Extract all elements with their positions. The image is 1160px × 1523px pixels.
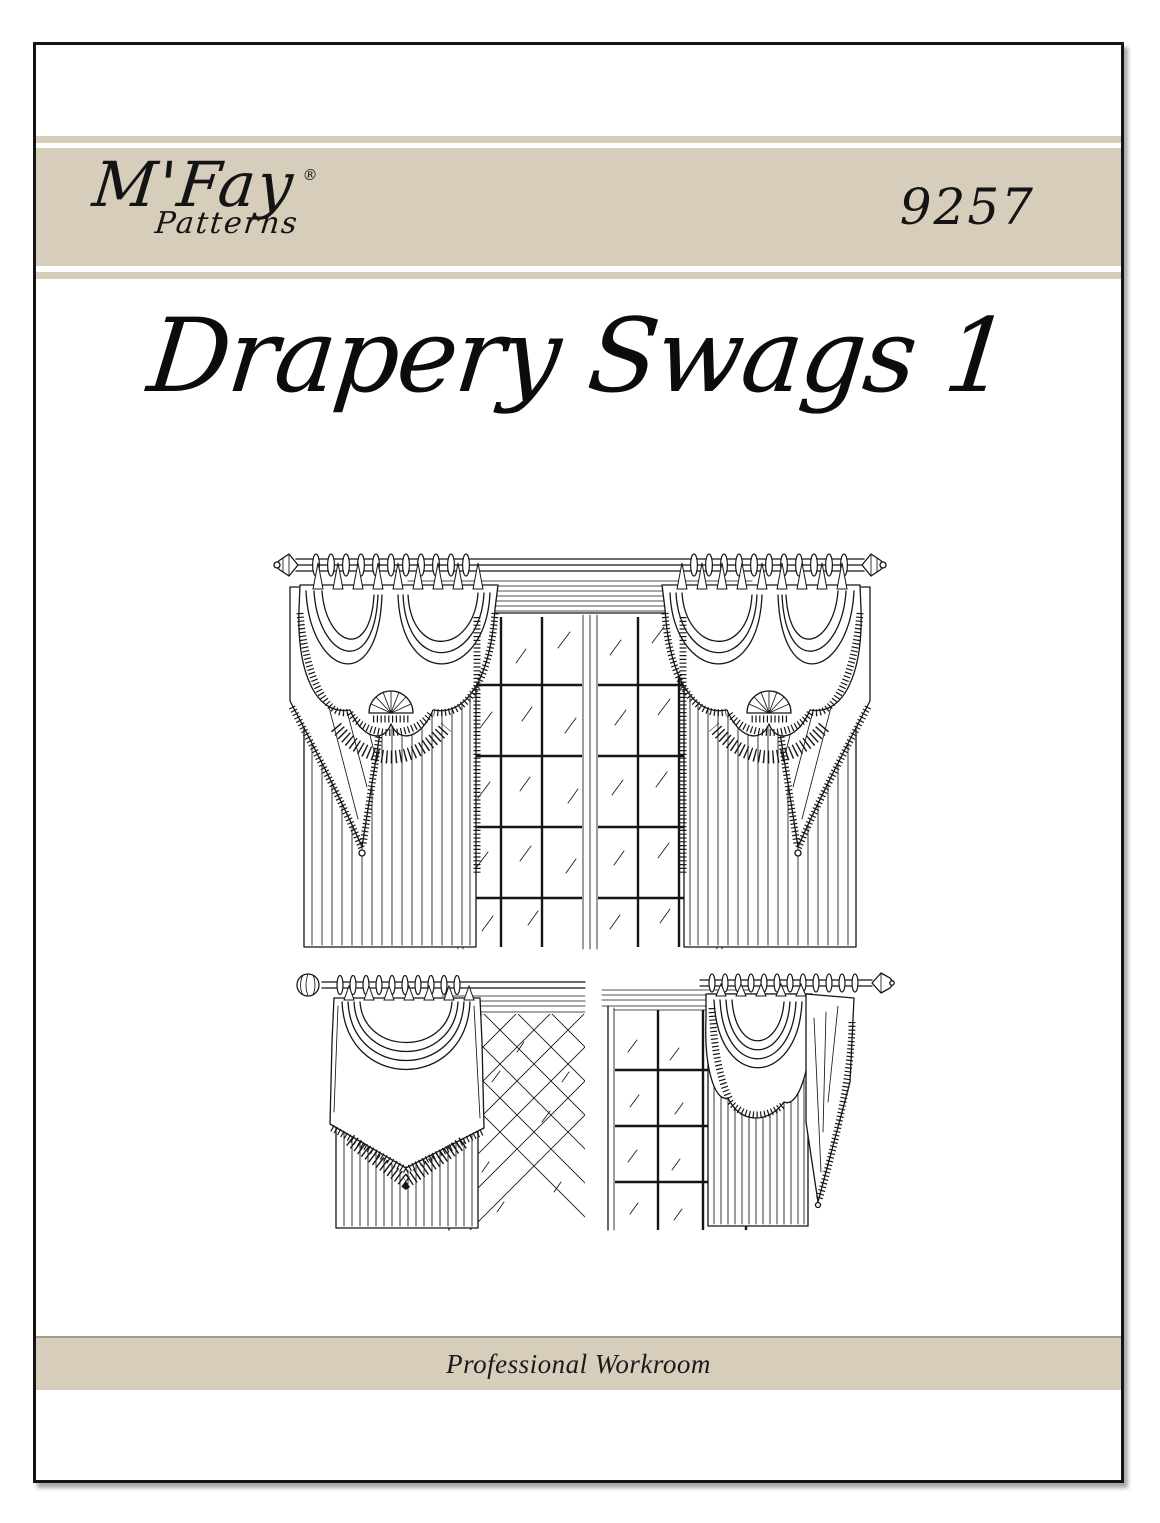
brand-subtitle: Patterns [153,206,314,241]
swag-drapery [706,984,854,1226]
finial-icon [872,973,894,993]
finial-icon [274,554,298,576]
curtain-rings [337,976,460,995]
main-drapery-illustration [270,543,890,963]
swag-cascade-window-illustration [600,962,895,1234]
swag-drapery [330,986,484,1228]
footer-banner: Professional Workroom [36,1336,1121,1390]
brand-banner: M'Fay® Patterns 9257 [36,148,1121,266]
left-swag-drapery [290,563,498,947]
registered-trademark-icon: ® [302,166,319,184]
pleat-tabs [313,563,483,589]
glass-reflections [475,627,709,931]
swag-lattice-window-illustration [292,962,587,1234]
accent-strip-under-banner [36,272,1121,279]
ball-finial-icon [297,974,319,996]
finial-icon [862,554,886,576]
page-title: Drapery Swags 1 [30,297,1128,416]
accent-strip-top [36,136,1121,143]
curtain-rod [296,559,864,571]
pattern-number: 9257 [900,178,1035,236]
pattern-cover-page: M'Fay® Patterns 9257 Drapery Swags 1 [33,42,1124,1483]
brand-logo: M'Fay® Patterns [87,152,320,241]
footer-text: Professional Workroom [446,1349,711,1380]
right-swag-drapery [662,563,870,947]
